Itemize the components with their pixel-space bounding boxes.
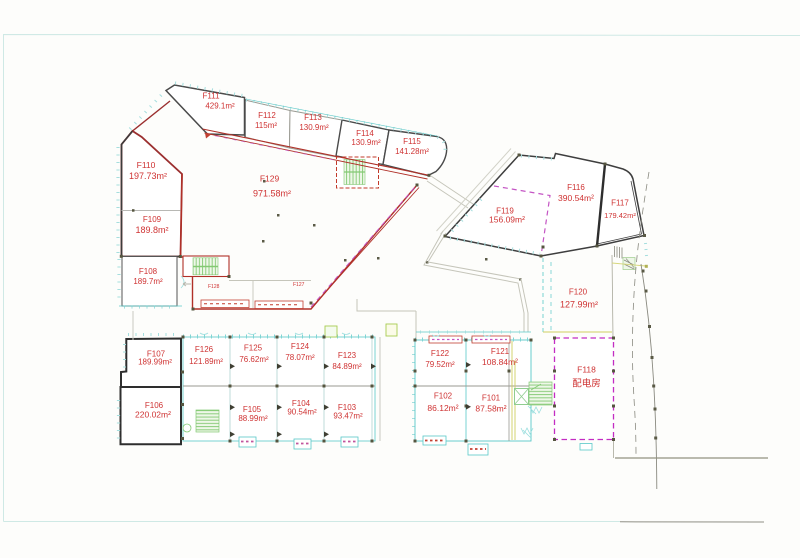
svg-text:F118: F118 xyxy=(577,365,596,375)
svg-text:76.62m²: 76.62m² xyxy=(239,355,269,364)
svg-text:189.7m²: 189.7m² xyxy=(133,277,163,286)
svg-text:87.58m²: 87.58m² xyxy=(475,404,506,414)
svg-text:F128: F128 xyxy=(208,284,220,290)
svg-text:90.54m²: 90.54m² xyxy=(287,408,317,417)
svg-text:F125: F125 xyxy=(244,344,263,353)
svg-text:F116: F116 xyxy=(567,183,585,192)
svg-text:F127: F127 xyxy=(293,282,305,288)
svg-text:189.8m²: 189.8m² xyxy=(135,225,168,235)
svg-text:F115: F115 xyxy=(403,137,421,146)
svg-text:F112: F112 xyxy=(258,111,276,120)
svg-text:F110: F110 xyxy=(137,160,156,170)
svg-text:88.99m²: 88.99m² xyxy=(238,414,268,423)
svg-text:78.07m²: 78.07m² xyxy=(285,353,315,362)
svg-text:390.54m²: 390.54m² xyxy=(558,193,594,203)
svg-text:F114: F114 xyxy=(356,129,374,138)
svg-text:971.58m²: 971.58m² xyxy=(253,189,291,199)
svg-text:F102: F102 xyxy=(434,392,453,401)
svg-text:108.84m²: 108.84m² xyxy=(482,357,518,367)
svg-text:F108: F108 xyxy=(139,267,158,276)
svg-text:F126: F126 xyxy=(195,345,214,354)
svg-text:79.52m²: 79.52m² xyxy=(425,360,455,369)
svg-text:115m²: 115m² xyxy=(255,121,277,130)
svg-text:127.99m²: 127.99m² xyxy=(560,300,598,310)
svg-text:F101: F101 xyxy=(482,394,501,403)
svg-text:130.9m²: 130.9m² xyxy=(351,138,381,147)
svg-text:141.28m²: 141.28m² xyxy=(395,147,429,156)
svg-text:配电房: 配电房 xyxy=(572,378,601,390)
svg-text:197.73m²: 197.73m² xyxy=(129,171,167,181)
svg-text:156.09m²: 156.09m² xyxy=(489,215,525,225)
svg-text:F121: F121 xyxy=(491,347,510,356)
svg-text:179.42m²: 179.42m² xyxy=(604,211,636,220)
svg-text:93.47m²: 93.47m² xyxy=(333,412,363,421)
svg-text:F111: F111 xyxy=(202,92,220,101)
svg-text:121.89m²: 121.89m² xyxy=(189,357,223,366)
svg-text:220.02m²: 220.02m² xyxy=(135,410,171,420)
svg-text:86.12m²: 86.12m² xyxy=(427,403,458,413)
svg-text:429.1m²: 429.1m² xyxy=(205,102,235,111)
svg-text:F120: F120 xyxy=(569,288,588,297)
svg-text:130.9m²: 130.9m² xyxy=(299,123,329,132)
svg-text:F113: F113 xyxy=(304,113,322,122)
svg-text:F122: F122 xyxy=(431,349,450,358)
svg-text:189.99m²: 189.99m² xyxy=(138,358,172,367)
svg-text:F105: F105 xyxy=(243,405,262,414)
svg-text:F117: F117 xyxy=(611,199,629,208)
svg-text:84.89m²: 84.89m² xyxy=(332,362,362,371)
svg-text:F123: F123 xyxy=(338,351,357,360)
svg-text:F124: F124 xyxy=(291,342,310,351)
svg-text:F109: F109 xyxy=(143,215,162,224)
svg-text:F129: F129 xyxy=(260,174,280,184)
